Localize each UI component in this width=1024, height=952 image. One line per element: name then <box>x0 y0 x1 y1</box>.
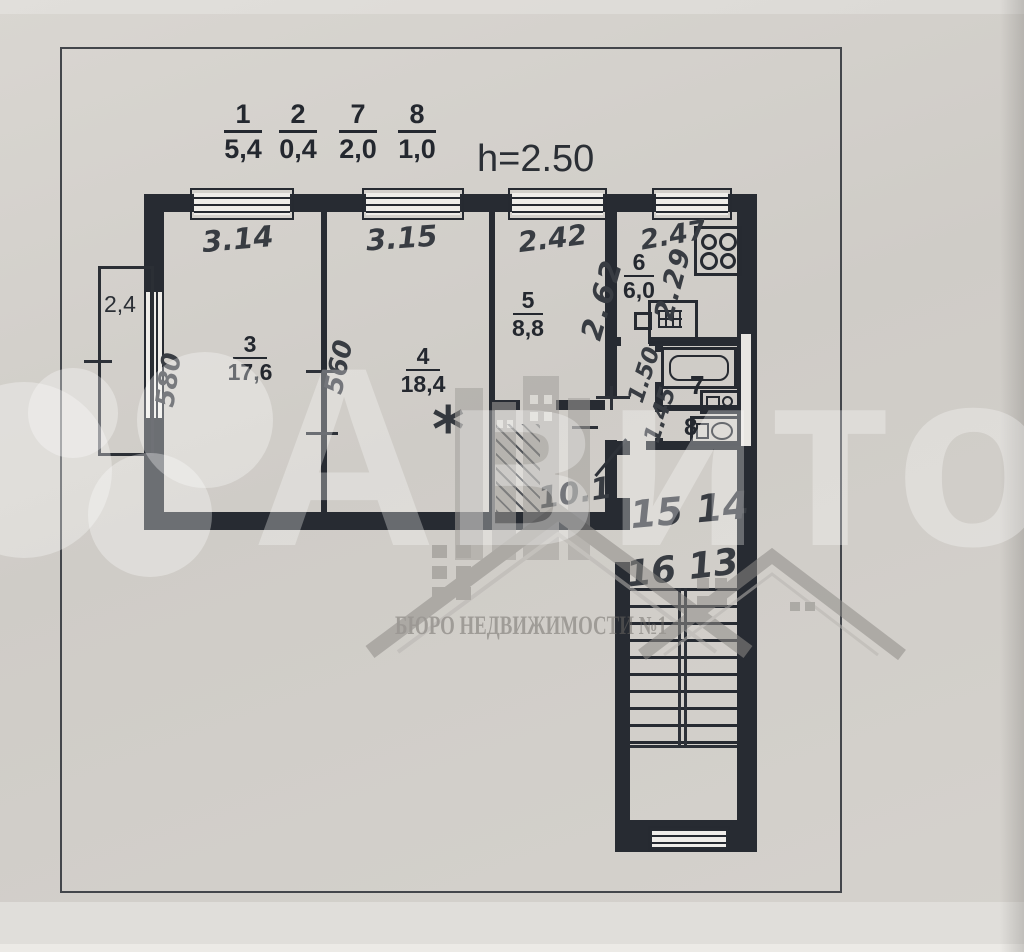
avito-watermark-text: Авито <box>252 330 1024 585</box>
window-room3 <box>190 188 294 220</box>
window-kitchen <box>652 188 732 220</box>
legend-fraction-7: 7 2,0 <box>336 100 380 164</box>
floor-plan-photo: { "header": { "room_fractions": [ {"num"… <box>0 0 1024 952</box>
stair-wall-left-c <box>615 562 630 852</box>
photo-top-light-edge <box>0 0 1024 14</box>
balcony-label: 2,4 <box>104 291 136 318</box>
window-room4 <box>362 188 464 220</box>
photo-paper-edge <box>0 944 1024 952</box>
dim-room4-width: 3.15 <box>365 219 439 258</box>
dim-room3-width: 3.14 <box>201 219 275 259</box>
legend-fraction-1: 1 5,4 <box>221 100 265 164</box>
stairs-stringer-right <box>684 588 687 748</box>
legend-1-num: 1 <box>221 100 265 128</box>
window-room5 <box>508 188 607 220</box>
ceiling-height-label: h=2.50 <box>477 138 594 181</box>
stairs-stringer-left <box>678 588 681 748</box>
legend-1-area: 5,4 <box>221 135 265 163</box>
window-stairwell <box>648 826 730 852</box>
legend-fraction-2: 2 0,4 <box>276 100 320 164</box>
legend-fraction-8: 8 1,0 <box>395 100 439 164</box>
photo-bottom-strip <box>0 902 1024 944</box>
stairs-flight-bottom-line <box>630 745 737 748</box>
balcony-dim-tick <box>84 360 112 363</box>
